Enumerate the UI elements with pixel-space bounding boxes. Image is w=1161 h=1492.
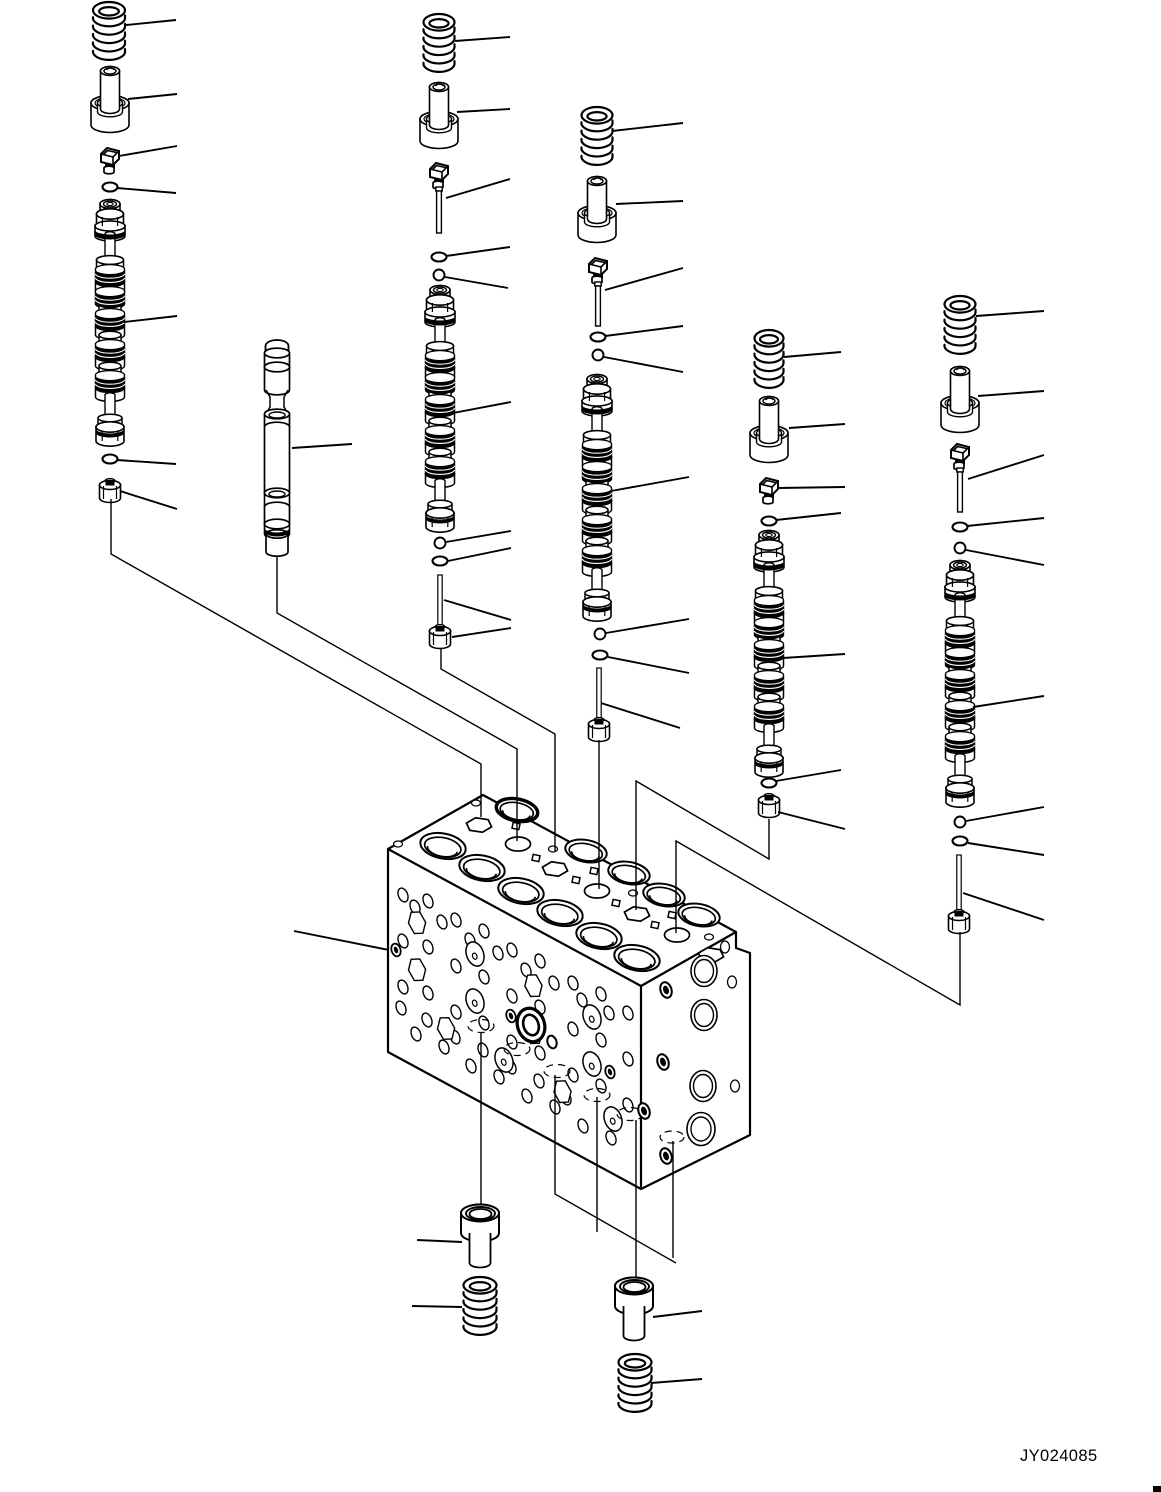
svg-text:JY024085: JY024085 <box>1020 1447 1098 1465</box>
